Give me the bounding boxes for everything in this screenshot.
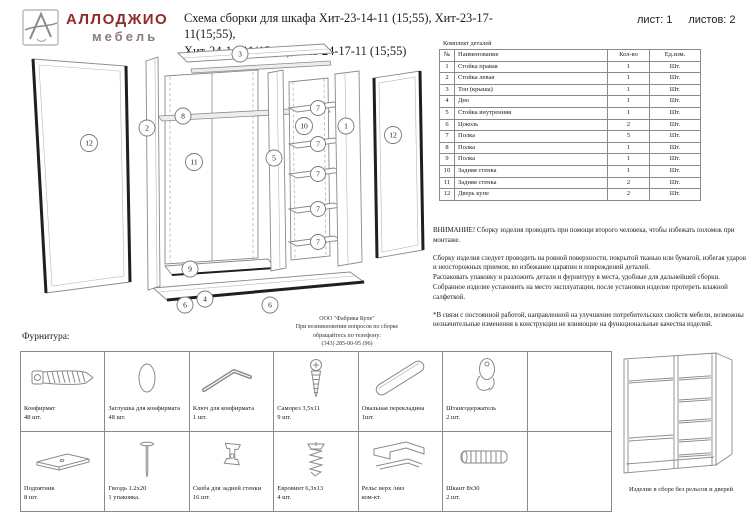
- hardware-item: Подпятник8 шт.: [21, 432, 105, 512]
- table-row: 9Полка1Шт.: [440, 154, 701, 166]
- svg-text:10: 10: [300, 122, 308, 131]
- hardware-item-label: Заглушка для конфирмата48 шт.: [105, 404, 188, 424]
- hardware-section-label: Фурнитура:: [22, 332, 70, 342]
- rail-profile-icon: [359, 432, 442, 484]
- hardware-item: Скоба для задней стенки16 шт.: [189, 432, 273, 512]
- hardware-item: Штангодержатель2 шт.: [443, 352, 527, 432]
- hardware-item-label: Рельс верх /низком-кт.: [359, 484, 442, 504]
- parts-table-caption: Комплект деталей: [443, 40, 492, 47]
- col-qty: Кол-во: [608, 50, 650, 62]
- dowel-icon: [443, 432, 526, 484]
- sheet-info: лист: 1листов: 2: [637, 14, 736, 26]
- col-unit: Ед.изм.: [650, 50, 701, 62]
- svg-text:7: 7: [316, 170, 320, 179]
- confirmat-screw-icon: [21, 352, 104, 404]
- sheets-total: листов: 2: [688, 14, 735, 26]
- svg-text:9: 9: [188, 265, 192, 274]
- callout-shelf-7: 7: [311, 202, 326, 217]
- callout-shelf-8: 8: [175, 108, 191, 124]
- assembly-instruction-sheet: АЛЛОДЖИО мебель Схема сборки для шкафа Х…: [0, 0, 748, 527]
- assembly-notes: ВНИМАНИЕ! Сборку изделия проводить при п…: [433, 226, 747, 330]
- factory-contact-note: ООО "Фабрика Купе" При возникновении воп…: [252, 315, 442, 349]
- note-unpack: Распаковать упаковку и разложить детали …: [433, 273, 747, 283]
- table-row: 8Полка1Шт.: [440, 142, 701, 154]
- hardware-item-label: Штангодержатель2 шт.: [443, 404, 526, 424]
- hardware-item-label: Шкант 8х302 шт.: [443, 484, 526, 504]
- assembled-wardrobe-drawing: [616, 342, 746, 484]
- hardware-item-label: Скоба для задней стенки16 шт.: [190, 484, 273, 504]
- callout-shelf-7: 7: [311, 137, 326, 152]
- hardware-item: Ключ для конфирмата1 шт.: [189, 352, 273, 432]
- table-row: 2Стойка левая1Шт.: [440, 73, 701, 85]
- table-row: 11Задняя стенка2Шт.: [440, 177, 701, 189]
- exploded-diagram: 12 2 3 8 11 9 5 7 7 7 7 7 10 1 12 6 4 6: [12, 40, 432, 325]
- callout-bottom: 4: [197, 291, 213, 307]
- hardware-item: Конфирмат48 шт.: [21, 352, 105, 432]
- hardware-cell-empty: [527, 352, 611, 432]
- hardware-item-label: Подпятник8 шт.: [21, 484, 104, 504]
- svg-text:8: 8: [181, 112, 185, 121]
- callout-inner-stand: 5: [266, 150, 282, 166]
- table-row: 10Задняя стенка1Шт.: [440, 165, 701, 177]
- svg-text:7: 7: [316, 205, 320, 214]
- hardware-item-label: Евровинт 6,3х134 шт.: [274, 484, 357, 504]
- callout-left-stand: 2: [139, 120, 155, 136]
- callout-shelf-7: 7: [311, 235, 326, 250]
- col-name: Наименование: [455, 50, 608, 62]
- hardware-row-1: Конфирмат48 шт. Заглушка для конфирмата4…: [21, 352, 612, 432]
- table-row: 12Дверь купе2Шт.: [440, 189, 701, 201]
- callout-plinth: 6: [177, 297, 193, 313]
- callout-right-stand: 1: [338, 118, 354, 134]
- hardware-item: Гвоздь 1.2х201 упаковка.: [105, 432, 189, 512]
- callout-shelf-7: 7: [311, 167, 326, 182]
- rail-holder-icon: [443, 352, 526, 404]
- title-line-1: Схема сборки для шкафа Хит-23-14-11 (15;…: [184, 10, 544, 43]
- svg-text:1: 1: [344, 122, 348, 131]
- callout-back-panel-10: 10: [296, 118, 313, 135]
- table-row: 1Стойка правая1Шт.: [440, 61, 701, 73]
- note-install: Собранное изделие установить на место эк…: [433, 283, 747, 303]
- table-row: 5Стойка внутренняя1Шт.: [440, 107, 701, 119]
- nail-icon: [105, 432, 188, 484]
- table-row: 3Топ (крыша)1Шт.: [440, 84, 701, 96]
- svg-text:5: 5: [272, 154, 276, 163]
- svg-text:6: 6: [183, 301, 187, 310]
- svg-text:7: 7: [316, 104, 320, 113]
- hardware-row-2: Подпятник8 шт. Гвоздь 1.2х201 упаковка.: [21, 432, 612, 512]
- euro-screw-icon: [274, 432, 357, 484]
- callout-back-panel-11: 11: [186, 154, 203, 171]
- hardware-item-label: Саморез 3,5х119 шт.: [274, 404, 357, 424]
- warning-note: ВНИМАНИЕ! Сборку изделия проводить при п…: [433, 226, 747, 246]
- svg-text:3: 3: [238, 50, 242, 59]
- callout-plinth: 6: [262, 297, 278, 313]
- hardware-item-label: Конфирмат48 шт.: [21, 404, 104, 424]
- assembled-view-caption: Изделие в сборе без рельсов и дверей: [611, 486, 748, 493]
- parts-header-row: № Наименование Кол-во Ед.изм.: [440, 50, 701, 62]
- hardware-cell-empty: [527, 432, 611, 512]
- note-surface: Сборку изделия следует проводить на ровн…: [433, 254, 747, 274]
- svg-text:7: 7: [316, 140, 320, 149]
- brand-name: АЛЛОДЖИО: [66, 11, 168, 28]
- table-row: 4Дно1Шт.: [440, 96, 701, 108]
- oval-tube-icon: [359, 352, 442, 404]
- hardware-item-label: Гвоздь 1.2х201 упаковка.: [105, 484, 188, 504]
- svg-text:11: 11: [190, 158, 198, 167]
- hardware-item: Овальная перекладина1шт.: [358, 352, 442, 432]
- callout-right-door: 12: [385, 127, 402, 144]
- disclaimer-note: *В связи с постоянной работой, направлен…: [433, 311, 747, 331]
- hardware-item-label: Овальная перекладина1шт.: [359, 404, 442, 424]
- svg-text:12: 12: [85, 139, 93, 148]
- callout-shelf-7: 7: [311, 101, 326, 116]
- hardware-item: Рельс верх /низком-кт.: [358, 432, 442, 512]
- svg-text:4: 4: [203, 295, 207, 304]
- sheet-number: лист: 1: [637, 14, 672, 26]
- hex-key-icon: [190, 352, 273, 404]
- callout-top: 3: [232, 46, 248, 62]
- hardware-item: Саморез 3,5х119 шт.: [274, 352, 358, 432]
- col-num: №: [440, 50, 455, 62]
- foot-plate-icon: [21, 432, 104, 484]
- table-row: 7Полка5Шт.: [440, 131, 701, 143]
- parts-table: № Наименование Кол-во Ед.изм. 1Стойка пр…: [439, 49, 701, 201]
- hardware-item: Шкант 8х302 шт.: [443, 432, 527, 512]
- callout-left-door: 12: [81, 135, 98, 152]
- svg-text:2: 2: [145, 124, 149, 133]
- hardware-table: Конфирмат48 шт. Заглушка для конфирмата4…: [20, 351, 612, 512]
- table-row: 6Цоколь2Шт.: [440, 119, 701, 131]
- cap-icon: [105, 352, 188, 404]
- svg-text:7: 7: [316, 238, 320, 247]
- hardware-item: Заглушка для конфирмата48 шт.: [105, 352, 189, 432]
- svg-text:6: 6: [268, 301, 272, 310]
- hardware-item-label: Ключ для конфирмата1 шт.: [190, 404, 273, 424]
- callout-shelf-9: 9: [182, 261, 198, 277]
- svg-text:12: 12: [389, 131, 397, 140]
- screw-icon: [274, 352, 357, 404]
- back-panel-bracket-icon: [190, 432, 273, 484]
- hardware-item: Евровинт 6,3х134 шт.: [274, 432, 358, 512]
